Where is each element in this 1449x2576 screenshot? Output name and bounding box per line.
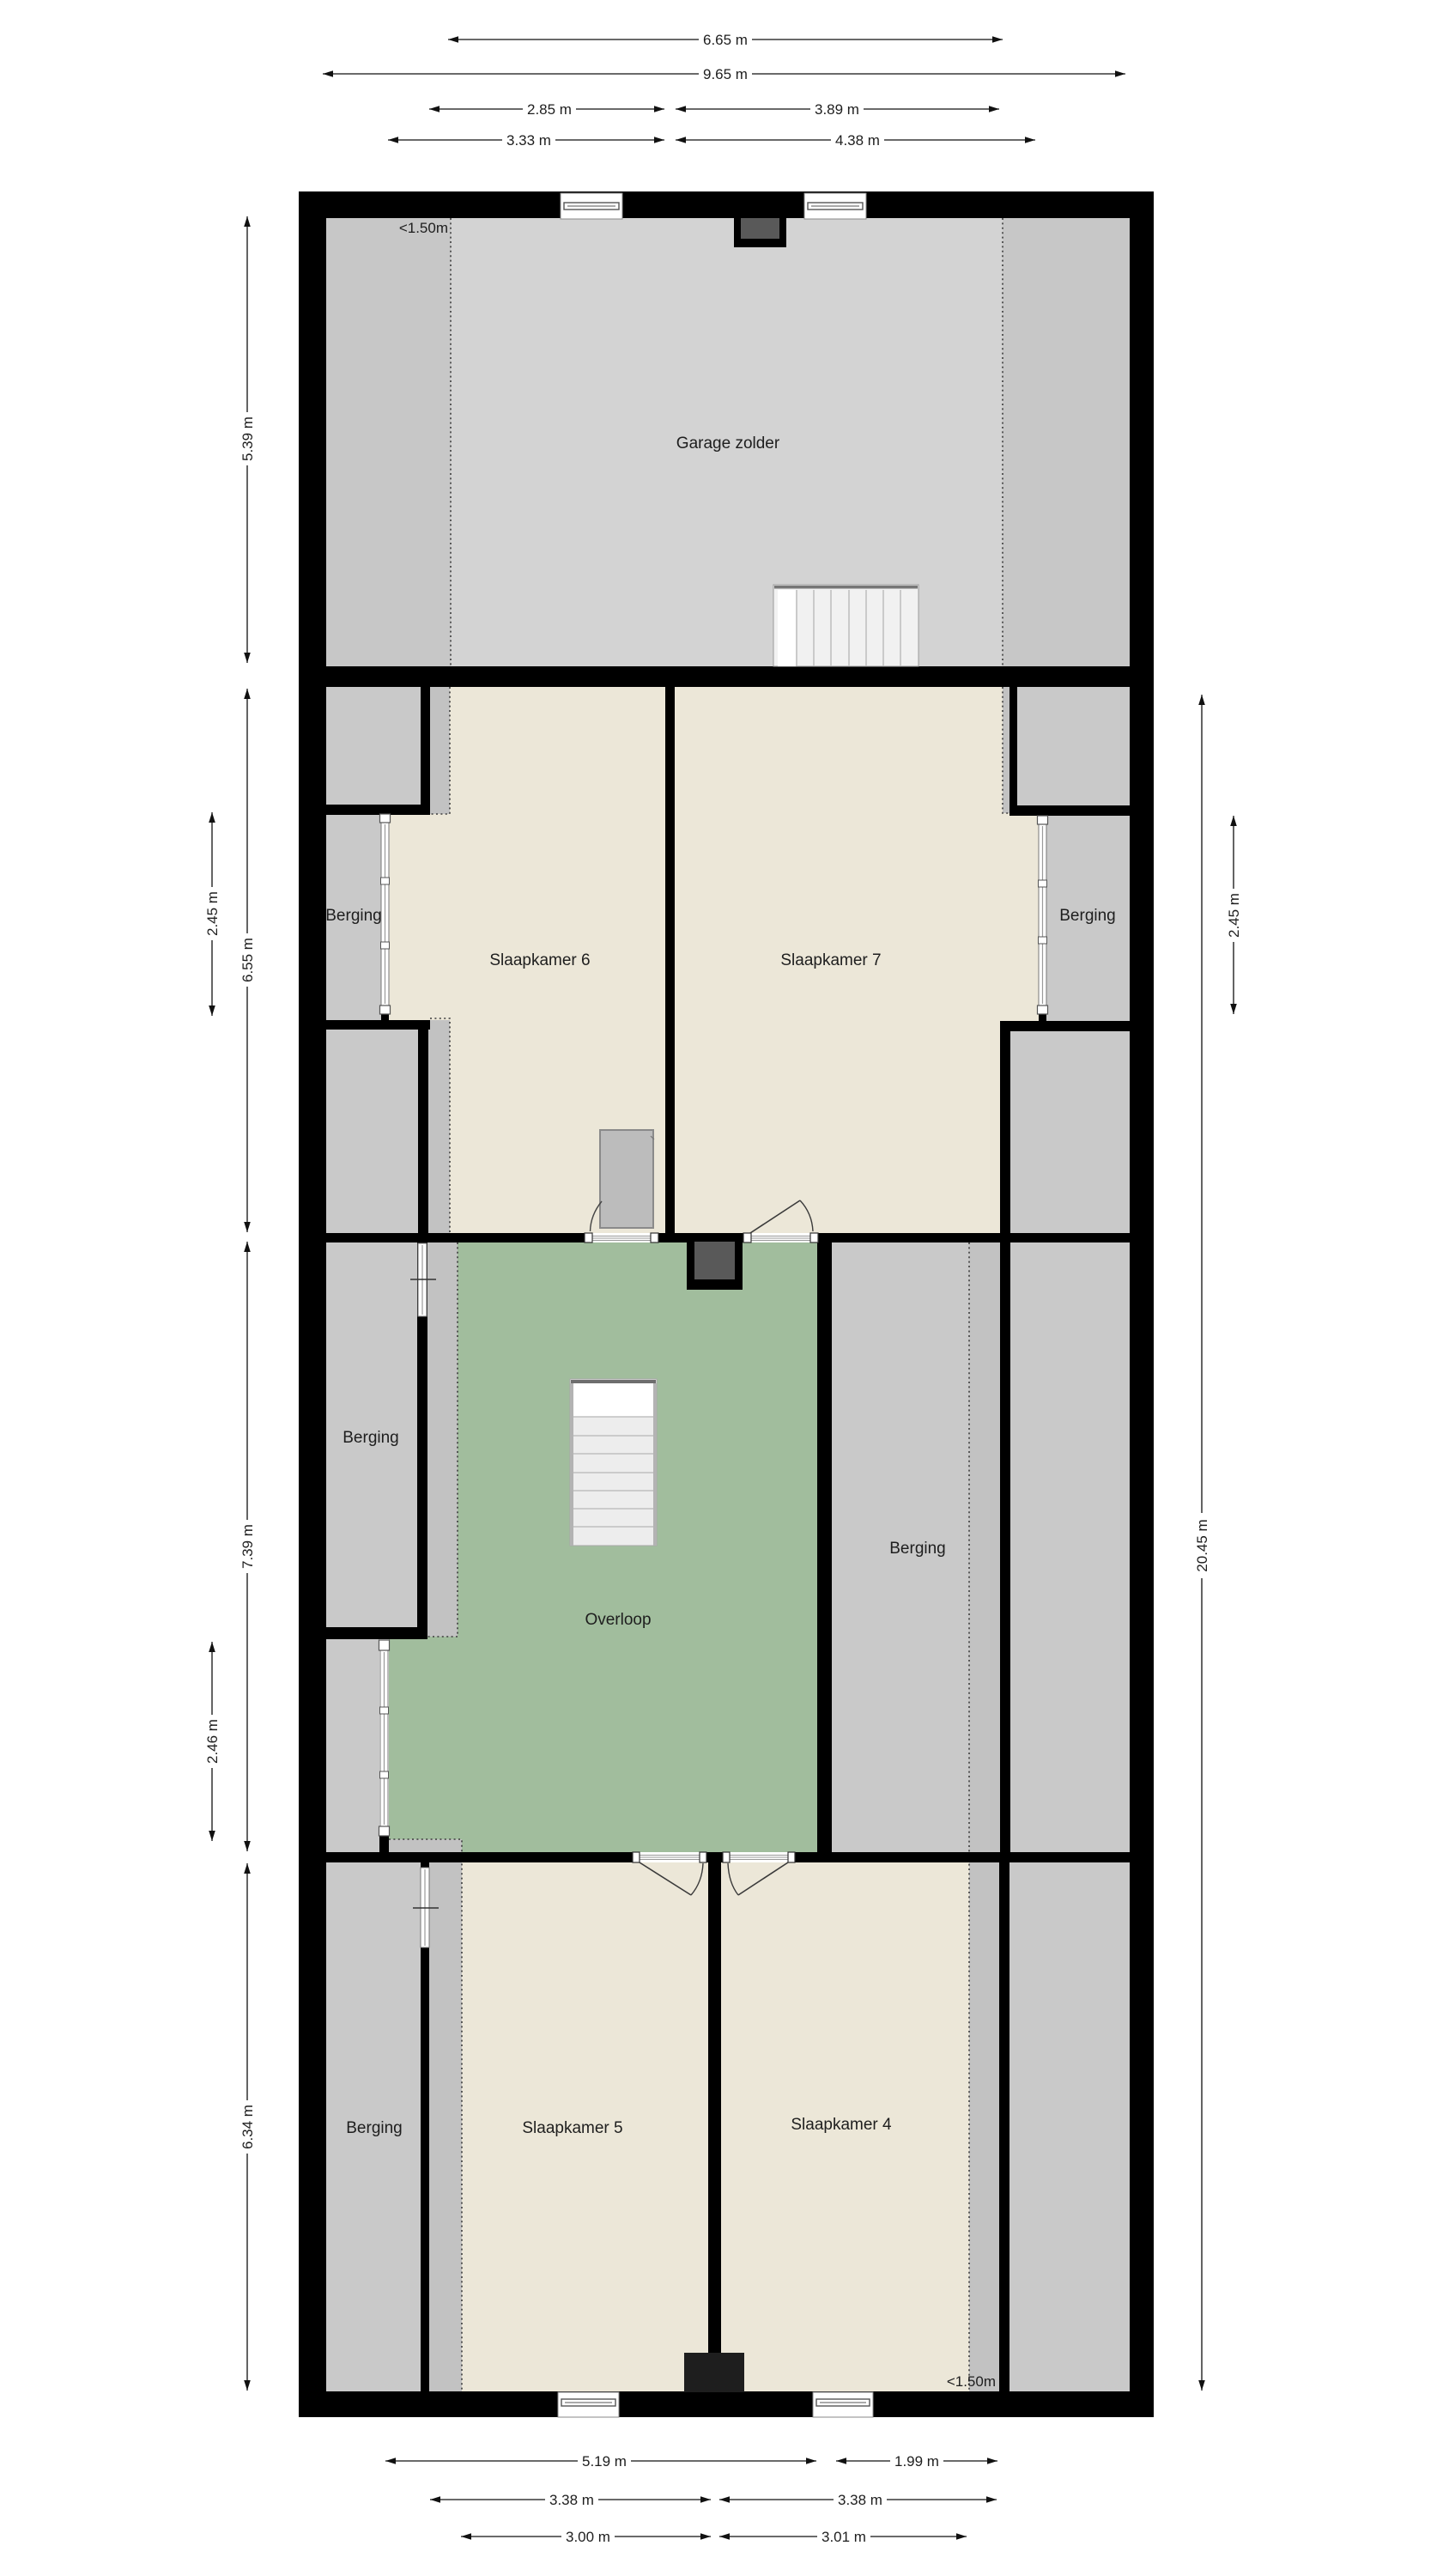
svg-text:Berging: Berging xyxy=(1059,907,1116,925)
svg-text:<1.50m: <1.50m xyxy=(399,220,448,236)
svg-text:9.65 m: 9.65 m xyxy=(703,66,748,82)
svg-text:6.55 m: 6.55 m xyxy=(239,938,256,982)
svg-text:20.45 m: 20.45 m xyxy=(1194,1519,1210,1571)
svg-text:Berging: Berging xyxy=(343,1429,399,1447)
svg-text:4.38 m: 4.38 m xyxy=(835,132,880,149)
svg-text:2.85 m: 2.85 m xyxy=(527,101,572,118)
svg-text:3.89 m: 3.89 m xyxy=(815,101,859,118)
svg-text:Overloop: Overloop xyxy=(585,1611,651,1629)
svg-text:2.46 m: 2.46 m xyxy=(204,1719,221,1764)
svg-text:Berging: Berging xyxy=(889,1540,946,1558)
svg-text:Garage zolder: Garage zolder xyxy=(676,434,780,453)
svg-text:3.38 m: 3.38 m xyxy=(838,2492,882,2508)
svg-text:2.45 m: 2.45 m xyxy=(1226,893,1242,938)
svg-text:Slaapkamer 5: Slaapkamer 5 xyxy=(522,2119,622,2137)
svg-text:Berging: Berging xyxy=(325,907,382,925)
svg-text:5.39 m: 5.39 m xyxy=(239,416,256,461)
svg-text:Slaapkamer 7: Slaapkamer 7 xyxy=(780,951,881,969)
svg-text:Berging: Berging xyxy=(346,2119,403,2137)
svg-text:1.99 m: 1.99 m xyxy=(894,2453,939,2470)
svg-text:3.01 m: 3.01 m xyxy=(822,2529,866,2545)
svg-text:6.65 m: 6.65 m xyxy=(703,32,748,48)
svg-text:Slaapkamer 4: Slaapkamer 4 xyxy=(791,2116,892,2134)
svg-text:3.38 m: 3.38 m xyxy=(549,2492,594,2508)
svg-text:<1.50m: <1.50m xyxy=(947,2373,996,2390)
svg-text:3.00 m: 3.00 m xyxy=(566,2529,610,2545)
svg-text:2.45 m: 2.45 m xyxy=(204,891,221,936)
svg-text:5.19 m: 5.19 m xyxy=(582,2453,627,2470)
svg-text:6.34 m: 6.34 m xyxy=(239,2105,256,2149)
svg-text:Slaapkamer 6: Slaapkamer 6 xyxy=(489,951,590,969)
svg-text:3.33 m: 3.33 m xyxy=(506,132,551,149)
svg-text:7.39 m: 7.39 m xyxy=(239,1524,256,1569)
